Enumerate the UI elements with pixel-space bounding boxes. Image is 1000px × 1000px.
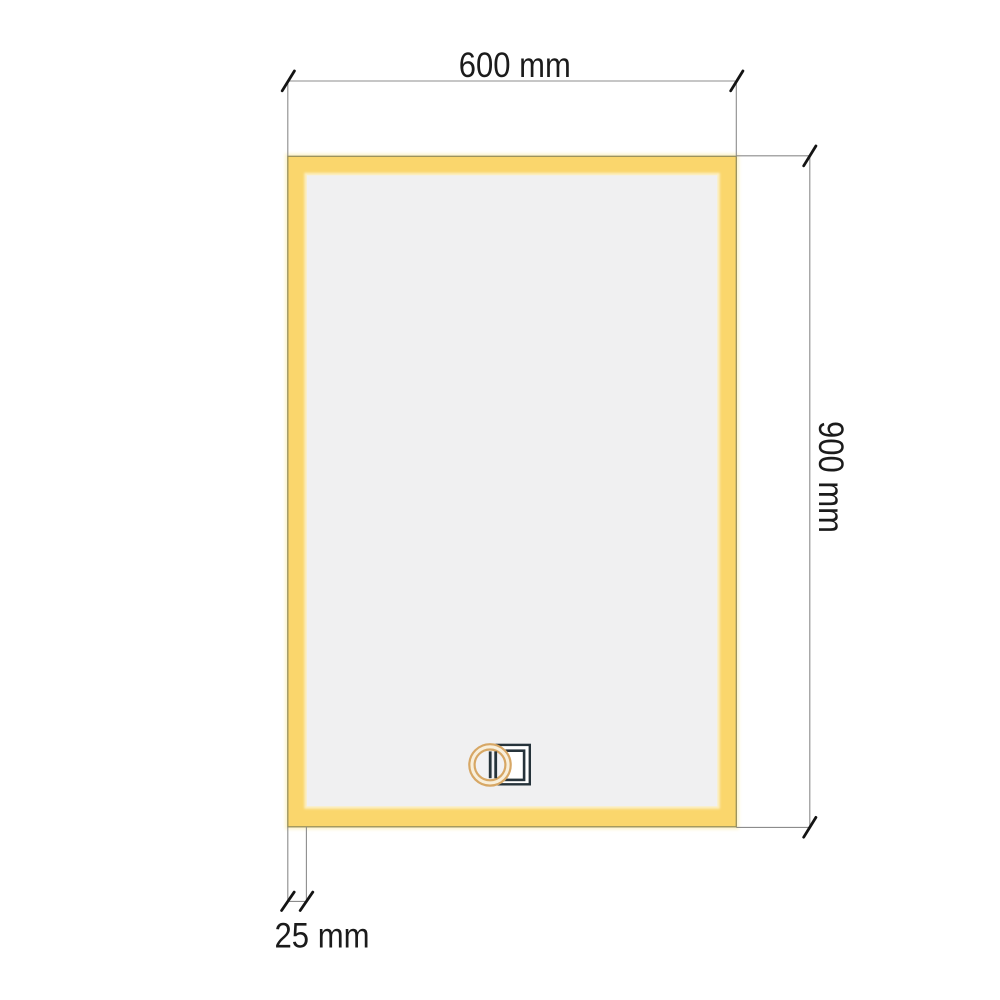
svg-text:900 mm: 900 mm xyxy=(811,421,850,533)
svg-text:600 mm: 600 mm xyxy=(459,46,571,85)
svg-text:25 mm: 25 mm xyxy=(275,917,370,956)
